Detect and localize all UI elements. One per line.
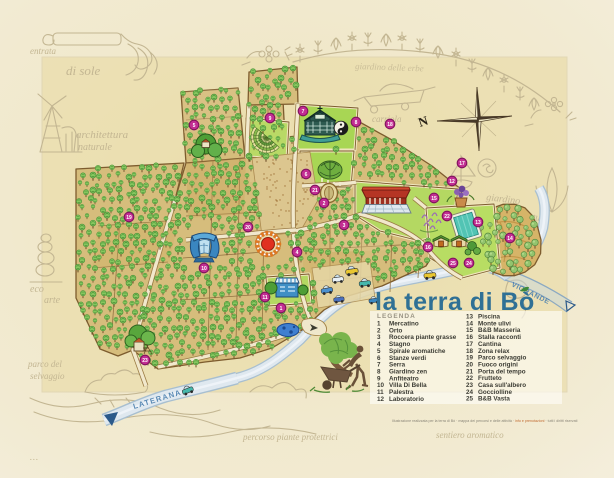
svg-text:sentiero aromatico: sentiero aromatico bbox=[436, 430, 504, 440]
svg-text:entrata: entrata bbox=[30, 46, 56, 56]
svg-text:20: 20 bbox=[245, 225, 251, 231]
svg-text:8: 8 bbox=[355, 120, 358, 126]
svg-text:percorso piante protettrici: percorso piante protettrici bbox=[242, 432, 338, 442]
svg-text:11: 11 bbox=[262, 295, 268, 301]
svg-text:24: 24 bbox=[466, 261, 472, 267]
svg-text:12: 12 bbox=[377, 396, 385, 403]
svg-text:4: 4 bbox=[296, 250, 299, 256]
svg-text:naturale: naturale bbox=[78, 142, 112, 153]
svg-text:5: 5 bbox=[193, 123, 196, 129]
svg-text:17: 17 bbox=[459, 161, 465, 167]
svg-text:…: … bbox=[30, 452, 38, 462]
svg-text:architettura: architettura bbox=[76, 129, 129, 141]
svg-text:7: 7 bbox=[302, 109, 305, 115]
svg-text:10: 10 bbox=[201, 266, 207, 272]
svg-text:2: 2 bbox=[323, 201, 326, 207]
svg-text:25: 25 bbox=[450, 261, 456, 267]
svg-text:22: 22 bbox=[444, 214, 450, 220]
svg-text:21: 21 bbox=[312, 188, 318, 194]
svg-text:23: 23 bbox=[142, 358, 148, 364]
svg-text:parco del: parco del bbox=[27, 359, 62, 369]
svg-text:15: 15 bbox=[431, 196, 437, 202]
svg-text:18: 18 bbox=[387, 122, 393, 128]
svg-text:14: 14 bbox=[507, 236, 513, 242]
svg-text:B&B Vasta: B&B Vasta bbox=[478, 396, 510, 403]
svg-text:selvaggio: selvaggio bbox=[30, 371, 65, 381]
svg-text:LEGENDA: LEGENDA bbox=[377, 313, 416, 320]
svg-text:16: 16 bbox=[425, 245, 431, 251]
svg-text:9: 9 bbox=[269, 116, 272, 122]
svg-text:1: 1 bbox=[280, 306, 283, 312]
svg-text:25: 25 bbox=[466, 396, 474, 403]
svg-text:12: 12 bbox=[449, 179, 455, 185]
svg-text:eco: eco bbox=[30, 284, 44, 295]
svg-text:3: 3 bbox=[343, 223, 346, 229]
svg-text:di sole: di sole bbox=[66, 63, 101, 78]
svg-text:arte: arte bbox=[44, 295, 61, 306]
svg-text:6: 6 bbox=[305, 172, 308, 178]
svg-text:19: 19 bbox=[126, 215, 132, 221]
svg-text:13: 13 bbox=[475, 220, 481, 226]
svg-text:Laboratorio: Laboratorio bbox=[389, 396, 424, 403]
svg-text:Illustrazione realizzata per l: Illustrazione realizzata per la terra di… bbox=[392, 419, 578, 423]
